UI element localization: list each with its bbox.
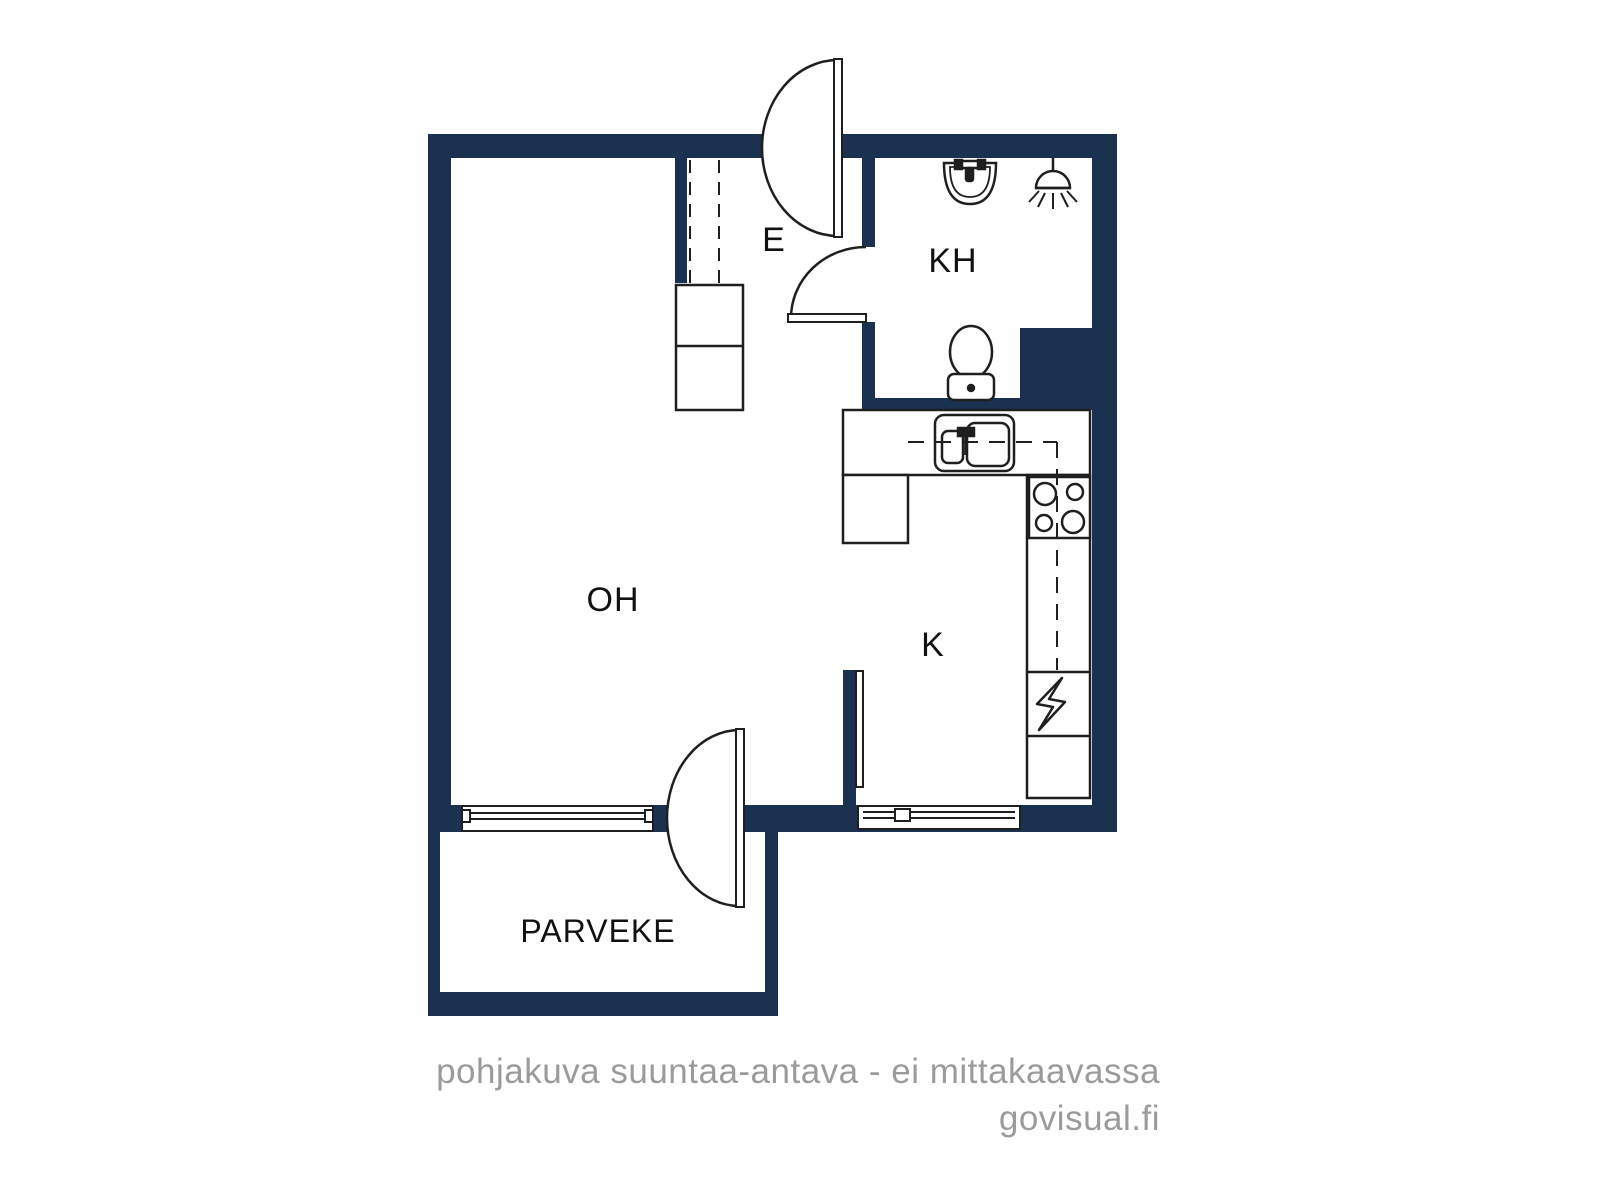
kitchen-window-icon [858,806,1020,829]
wall-balcony-bottom [428,992,778,1016]
wall-entry-bath-lower [862,322,875,398]
counter-left-column [843,475,908,543]
wall-balcony-left [428,832,440,1016]
floorplan-canvas: OH E KH K PARVEKE pohjakuva suuntaa-anta… [0,0,1600,1200]
wall-living-entry [675,158,687,283]
wall-balcony-right [765,832,778,1016]
bathroom-label: KH [928,242,977,280]
entry-label: E [762,221,786,259]
footer-disclaimer: pohjakuva suuntaa-antava - ei mittakaava… [436,1052,1160,1091]
kitchen-label: K [921,626,945,664]
wall-left [428,134,451,832]
wall-kitchen-stub [843,670,856,805]
stove-icon [1029,477,1090,538]
wall-right [1092,134,1117,832]
living-room-window-icon [462,806,653,831]
hall-cabinet-icon [676,285,743,410]
wall-top-right [840,134,1117,158]
balcony-label: PARVEKE [520,913,675,949]
wall-entry-bath-upper [862,158,875,247]
interior-door-leaf-icon [856,671,863,787]
toilet-icon [948,326,994,400]
bathroom-sink-icon [944,160,996,204]
living-room-label: OH [587,581,640,619]
floorplan-page: OH E KH K PARVEKE pohjakuva suuntaa-anta… [0,0,1600,1200]
wall-bath-notch [1020,328,1092,410]
wall-top-left [428,134,762,158]
footer-brand: govisual.fi [999,1099,1160,1138]
wall-bath-bottom [862,398,1020,410]
